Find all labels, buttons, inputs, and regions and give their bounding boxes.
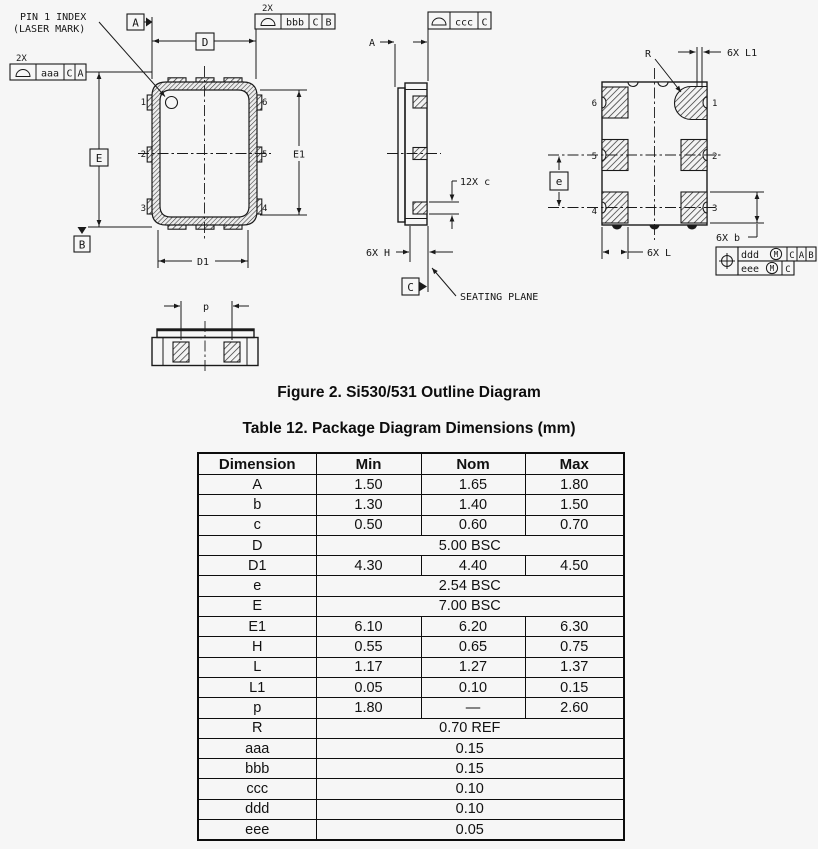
pad xyxy=(173,342,189,362)
pin1-index-note: (LASER MARK) xyxy=(13,24,85,35)
figure-caption: Figure 2. Si530/531 Outline Diagram xyxy=(0,384,818,402)
value-cell: 0.15 xyxy=(525,677,624,697)
dim-label-E: E xyxy=(96,152,103,165)
package-dimensions-table: DimensionMinNomMax A1.501.651.80b1.301.4… xyxy=(197,452,625,841)
value-cell: 7.00 BSC xyxy=(316,596,624,616)
fcf-qty: 2X xyxy=(262,4,273,14)
fcf-datum: C xyxy=(789,251,794,261)
datum-label-A: A xyxy=(132,17,139,30)
value-cell: 0.10 xyxy=(316,779,624,799)
value-cell: 1.30 xyxy=(316,495,421,515)
table-row: E7.00 BSC xyxy=(198,596,624,616)
table-row: L10.050.100.15 xyxy=(198,677,624,697)
fcf-tolerance: ccc xyxy=(455,18,473,29)
pin-label: 2 xyxy=(141,150,146,160)
value-cell: 6.10 xyxy=(316,617,421,637)
table-row: L1.171.271.37 xyxy=(198,657,624,677)
table-row: D14.304.404.50 xyxy=(198,556,624,576)
table-body: A1.501.651.80b1.301.401.50c0.500.600.70D… xyxy=(198,475,624,841)
dimension-cell: aaa xyxy=(198,738,316,758)
dim-label-E1: E1 xyxy=(293,150,305,161)
value-cell: 0.75 xyxy=(525,637,624,657)
fcf-datum: C xyxy=(66,69,72,80)
castellation-bump xyxy=(687,225,697,230)
fcf-tolerance: ddd xyxy=(741,250,759,261)
table-row: H0.550.650.75 xyxy=(198,637,624,657)
dimension-cell: E xyxy=(198,596,316,616)
dim-label-b: 6X b xyxy=(716,233,740,244)
datum-label-B: B xyxy=(79,239,86,252)
pin-label: 3 xyxy=(141,204,146,214)
value-cell: 1.65 xyxy=(421,475,525,495)
value-cell: 0.10 xyxy=(316,799,624,819)
fcf-position: ddd M C A B eee M C xyxy=(716,247,816,275)
dim-label-A-thickness: A xyxy=(369,38,375,49)
castellation-bump xyxy=(612,225,622,230)
value-cell: 6.30 xyxy=(525,617,624,637)
dimension-cell: E1 xyxy=(198,617,316,637)
dimension-cell: e xyxy=(198,576,316,596)
dim-label-H: 6X H xyxy=(366,248,390,259)
value-cell: 1.50 xyxy=(316,475,421,495)
castellation-notch xyxy=(602,97,606,108)
table-row: eee0.05 xyxy=(198,820,624,841)
p-detail-view: p xyxy=(152,301,258,373)
table-row: c0.500.600.70 xyxy=(198,515,624,535)
column-header: Max xyxy=(525,453,624,475)
table-row: ddd0.10 xyxy=(198,799,624,819)
value-cell: 1.50 xyxy=(525,495,624,515)
table-row: A1.501.651.80 xyxy=(198,475,624,495)
value-cell: 0.10 xyxy=(421,677,525,697)
dim-label-D1: D1 xyxy=(197,257,209,268)
pin-label: 4 xyxy=(262,204,267,214)
datasheet-page: 1 2 3 6 5 4 PIN 1 INDEX (LASER MARK) D A… xyxy=(0,0,818,849)
table-row: e2.54 BSC xyxy=(198,576,624,596)
dimension-cell: b xyxy=(198,495,316,515)
fcf-datum: B xyxy=(808,251,813,261)
castellation-notch xyxy=(703,97,707,108)
fcf-ccc: ccc C xyxy=(428,12,491,29)
dim-label-p: p xyxy=(203,302,209,313)
value-cell: 0.70 REF xyxy=(316,718,624,738)
value-cell: 0.65 xyxy=(421,637,525,657)
column-header: Min xyxy=(316,453,421,475)
fcf-tolerance: bbb xyxy=(286,18,304,29)
column-header: Nom xyxy=(421,453,525,475)
value-cell: 4.50 xyxy=(525,556,624,576)
table-row: ccc0.10 xyxy=(198,779,624,799)
dimension-cell: c xyxy=(198,515,316,535)
fcf-datum: C xyxy=(312,18,318,29)
fcf-qty: 2X xyxy=(16,54,27,64)
dimension-cell: A xyxy=(198,475,316,495)
fcf-tolerance: eee xyxy=(741,264,759,275)
value-cell: 0.60 xyxy=(421,515,525,535)
value-cell: 1.40 xyxy=(421,495,525,515)
pin-label: 4 xyxy=(592,207,597,217)
value-cell: 0.05 xyxy=(316,677,421,697)
seating-plane-label: SEATING PLANE xyxy=(460,292,538,303)
dimension-cell: ccc xyxy=(198,779,316,799)
value-cell: 5.00 BSC xyxy=(316,535,624,555)
pin-label: 6 xyxy=(592,99,597,109)
dimension-cell: D1 xyxy=(198,556,316,576)
pad xyxy=(413,202,427,214)
datum-label-C: C xyxy=(407,281,414,294)
value-cell: 1.17 xyxy=(316,657,421,677)
pad-1-rounded xyxy=(675,87,708,120)
package-lid xyxy=(398,88,405,222)
table-row: D5.00 BSC xyxy=(198,535,624,555)
mmc-modifier-letter: M xyxy=(774,250,779,259)
bottom-view: 6 1 5 2 4 3 R 6X L1 e 6X L 6X b xyxy=(548,47,764,259)
pin1-index-mark xyxy=(166,97,178,109)
fcf-datum: A xyxy=(799,251,805,261)
pin-label: 1 xyxy=(712,99,717,109)
dimension-cell: bbb xyxy=(198,759,316,779)
value-cell: 2.60 xyxy=(525,698,624,718)
value-cell: 0.55 xyxy=(316,637,421,657)
value-cell: 1.80 xyxy=(316,698,421,718)
fcf-datum: C xyxy=(481,18,487,29)
castellation-notch xyxy=(628,82,638,87)
value-cell: 1.80 xyxy=(525,475,624,495)
side-view: A 12X c 6X H C SEATING PLANE xyxy=(366,29,538,303)
value-cell: 0.70 xyxy=(525,515,624,535)
fcf-aaa: 2X aaa C A xyxy=(10,54,86,80)
pin-label: 3 xyxy=(712,204,717,214)
dim-label-L: 6X L xyxy=(647,248,671,259)
dimension-cell: L xyxy=(198,657,316,677)
dimension-cell: ddd xyxy=(198,799,316,819)
dimension-cell: L1 xyxy=(198,677,316,697)
fcf-tolerance: aaa xyxy=(41,69,59,80)
value-cell: 6.20 xyxy=(421,617,525,637)
castellation-notch xyxy=(658,82,668,87)
fcf-datum: B xyxy=(325,18,331,29)
value-cell: 1.27 xyxy=(421,657,525,677)
fcf-datum: A xyxy=(77,69,83,80)
table-row: p1.80—2.60 xyxy=(198,698,624,718)
outline-diagram: 1 2 3 6 5 4 PIN 1 INDEX (LASER MARK) D A… xyxy=(0,0,818,380)
value-cell: 2.54 BSC xyxy=(316,576,624,596)
column-header: Dimension xyxy=(198,453,316,475)
value-cell: 0.15 xyxy=(316,738,624,758)
dim-label-c: 12X c xyxy=(460,177,490,188)
dimension-cell: R xyxy=(198,718,316,738)
dim-label-L1: 6X L1 xyxy=(727,48,757,59)
pad xyxy=(413,96,427,108)
table-caption: Table 12. Package Diagram Dimensions (mm… xyxy=(0,420,818,438)
value-cell: — xyxy=(421,698,525,718)
pin1-index-note: PIN 1 INDEX xyxy=(20,12,86,23)
value-cell: 4.30 xyxy=(316,556,421,576)
fcf-datum: C xyxy=(785,265,790,275)
mmc-modifier-letter: M xyxy=(770,264,775,273)
pad xyxy=(224,342,240,362)
table-row: aaa0.15 xyxy=(198,738,624,758)
table-header: DimensionMinNomMax xyxy=(198,453,624,475)
datum-triangle-icon xyxy=(419,282,427,292)
value-cell: 4.40 xyxy=(421,556,525,576)
pin-label: 6 xyxy=(262,98,267,108)
dim-label-R: R xyxy=(645,49,652,60)
value-cell: 0.05 xyxy=(316,820,624,841)
dimensions-table-container: DimensionMinNomMax A1.501.651.80b1.301.4… xyxy=(197,452,625,841)
value-cell: 0.15 xyxy=(316,759,624,779)
dim-label-e: e xyxy=(556,175,563,188)
pin-label: 1 xyxy=(141,98,146,108)
value-cell: 1.37 xyxy=(525,657,624,677)
table-row: E16.106.206.30 xyxy=(198,617,624,637)
fcf-bbb: 2X bbb C B xyxy=(255,4,335,29)
dimension-cell: H xyxy=(198,637,316,657)
datum-triangle-icon xyxy=(78,227,87,234)
value-cell: 0.50 xyxy=(316,515,421,535)
table-row: b1.301.401.50 xyxy=(198,495,624,515)
dimension-cell: D xyxy=(198,535,316,555)
pin-label: 5 xyxy=(592,152,597,162)
pin-label: 2 xyxy=(712,152,717,162)
pin-label: 5 xyxy=(262,150,267,160)
table-row: bbb0.15 xyxy=(198,759,624,779)
top-view: 1 2 3 6 5 4 PIN 1 INDEX (LASER MARK) D A… xyxy=(13,12,310,268)
dimension-cell: eee xyxy=(198,820,316,841)
dim-label-D: D xyxy=(202,36,209,49)
dimension-cell: p xyxy=(198,698,316,718)
header-row: DimensionMinNomMax xyxy=(198,453,624,475)
table-row: R0.70 REF xyxy=(198,718,624,738)
